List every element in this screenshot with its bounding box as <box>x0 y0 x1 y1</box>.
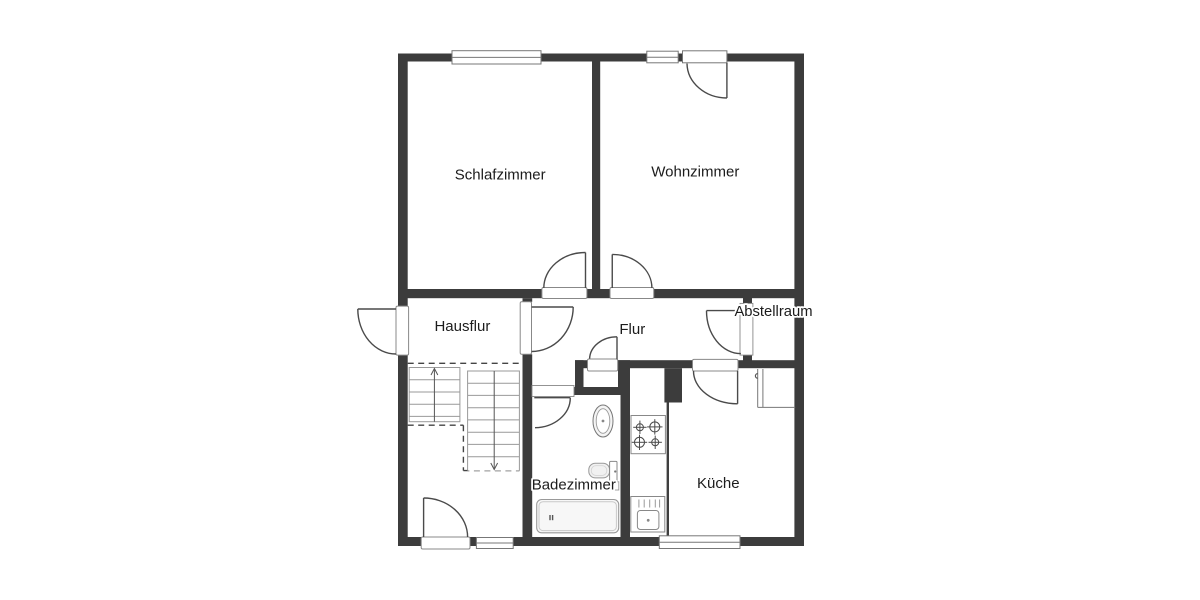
svg-text:Küche: Küche <box>697 475 740 492</box>
svg-text:Hausflur: Hausflur <box>434 318 490 335</box>
svg-text:Abstellraum: Abstellraum <box>734 304 812 320</box>
svg-text:Flur: Flur <box>619 321 645 338</box>
svg-text:Wohnzimmer: Wohnzimmer <box>651 164 739 181</box>
svg-text:Schlafzimmer: Schlafzimmer <box>455 167 546 184</box>
svg-text:Badezimmer: Badezimmer <box>532 477 616 494</box>
